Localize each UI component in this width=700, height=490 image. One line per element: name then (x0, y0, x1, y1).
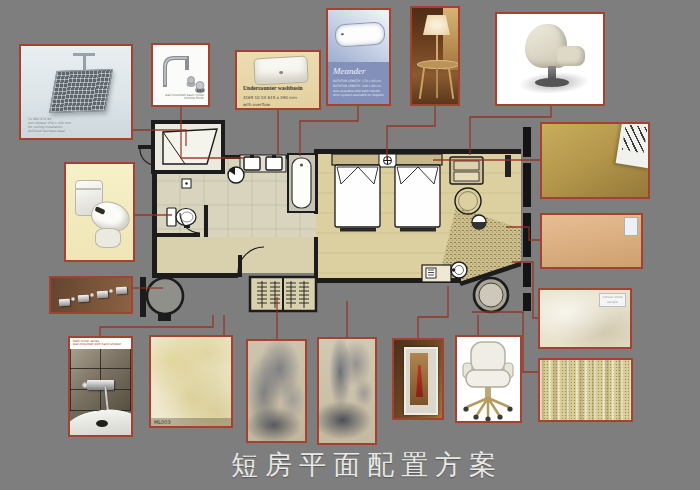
mirror-frame (404, 347, 438, 415)
basin-mixer-photo: 693 wall-mounted basin mixer chrome fini… (151, 43, 210, 107)
floor-plan (138, 105, 548, 340)
design-board: 31 980 970 90 rain shower 450 x 450 mm f… (0, 0, 700, 490)
stone-sample: natural stone sample (538, 288, 632, 349)
washbasin-title: Undercounter washbasin (243, 85, 303, 91)
gold-fabric-sample (540, 122, 650, 199)
bathtub-title: Meander (333, 66, 366, 76)
table-lamp-photo (410, 6, 460, 106)
bathtub-specs: BATHTUB LENGTH: 170 x 80 cm BATHTUB LENG… (333, 79, 384, 98)
faucet-caption: 693 wall-mounted basin mixer chrome fini… (165, 89, 204, 101)
shower-caption: 31 980 970 90 rain shower 450 x 450 mm f… (28, 117, 71, 133)
washbasin-spec: 4165 10 XX 615 x 390 mm (243, 95, 297, 100)
plan-shower (153, 122, 223, 172)
armchair-arm (557, 46, 585, 66)
armchair-photo (495, 12, 605, 106)
washbasin-card: Undercounter washbasin 4165 10 XX 615 x … (235, 50, 321, 110)
plan-window-wall (521, 125, 533, 313)
mixer-brand-text: bath mixer series wall-mounted with hand… (73, 340, 121, 348)
plan-column (147, 278, 183, 314)
fabric-swatch-label (616, 122, 650, 168)
red-dress-reflection (416, 365, 423, 397)
mixer-body (87, 380, 114, 390)
lamp-shade (423, 15, 450, 35)
mirror-photo (392, 338, 444, 420)
toilet-photo (64, 162, 135, 262)
office-chair-photo (455, 335, 522, 423)
washbasin-note: with overflow (243, 102, 270, 107)
fabric-swatch-label (624, 217, 638, 236)
marble-label: ML003 (154, 419, 171, 425)
ink-painting-1 (246, 339, 307, 443)
office-chair-drawing (457, 337, 520, 421)
plan-bathtub (288, 154, 316, 212)
bath-mixer-photo: bath mixer series wall-mounted with hand… (68, 336, 133, 437)
bath-accessories-photo (49, 276, 133, 314)
marble-tile-sample: ML003 (149, 335, 233, 428)
tan-fabric-sample (540, 213, 643, 269)
plan-closet (250, 277, 316, 311)
bathtub-card: Meander BATHTUB LENGTH: 170 x 80 cm BATH… (326, 8, 391, 106)
board-title: 短房平面配置方案 (0, 447, 700, 483)
washbasin-drawing (253, 56, 308, 86)
stone-sample-label: natural stone sample (599, 293, 626, 307)
rain-shower-plate (49, 69, 113, 113)
shower-head-photo: 31 980 970 90 rain shower 450 x 450 mm f… (19, 44, 133, 140)
carpet-sample (538, 358, 633, 422)
bathtub-photo (328, 10, 389, 62)
ink-painting-2 (317, 337, 377, 445)
